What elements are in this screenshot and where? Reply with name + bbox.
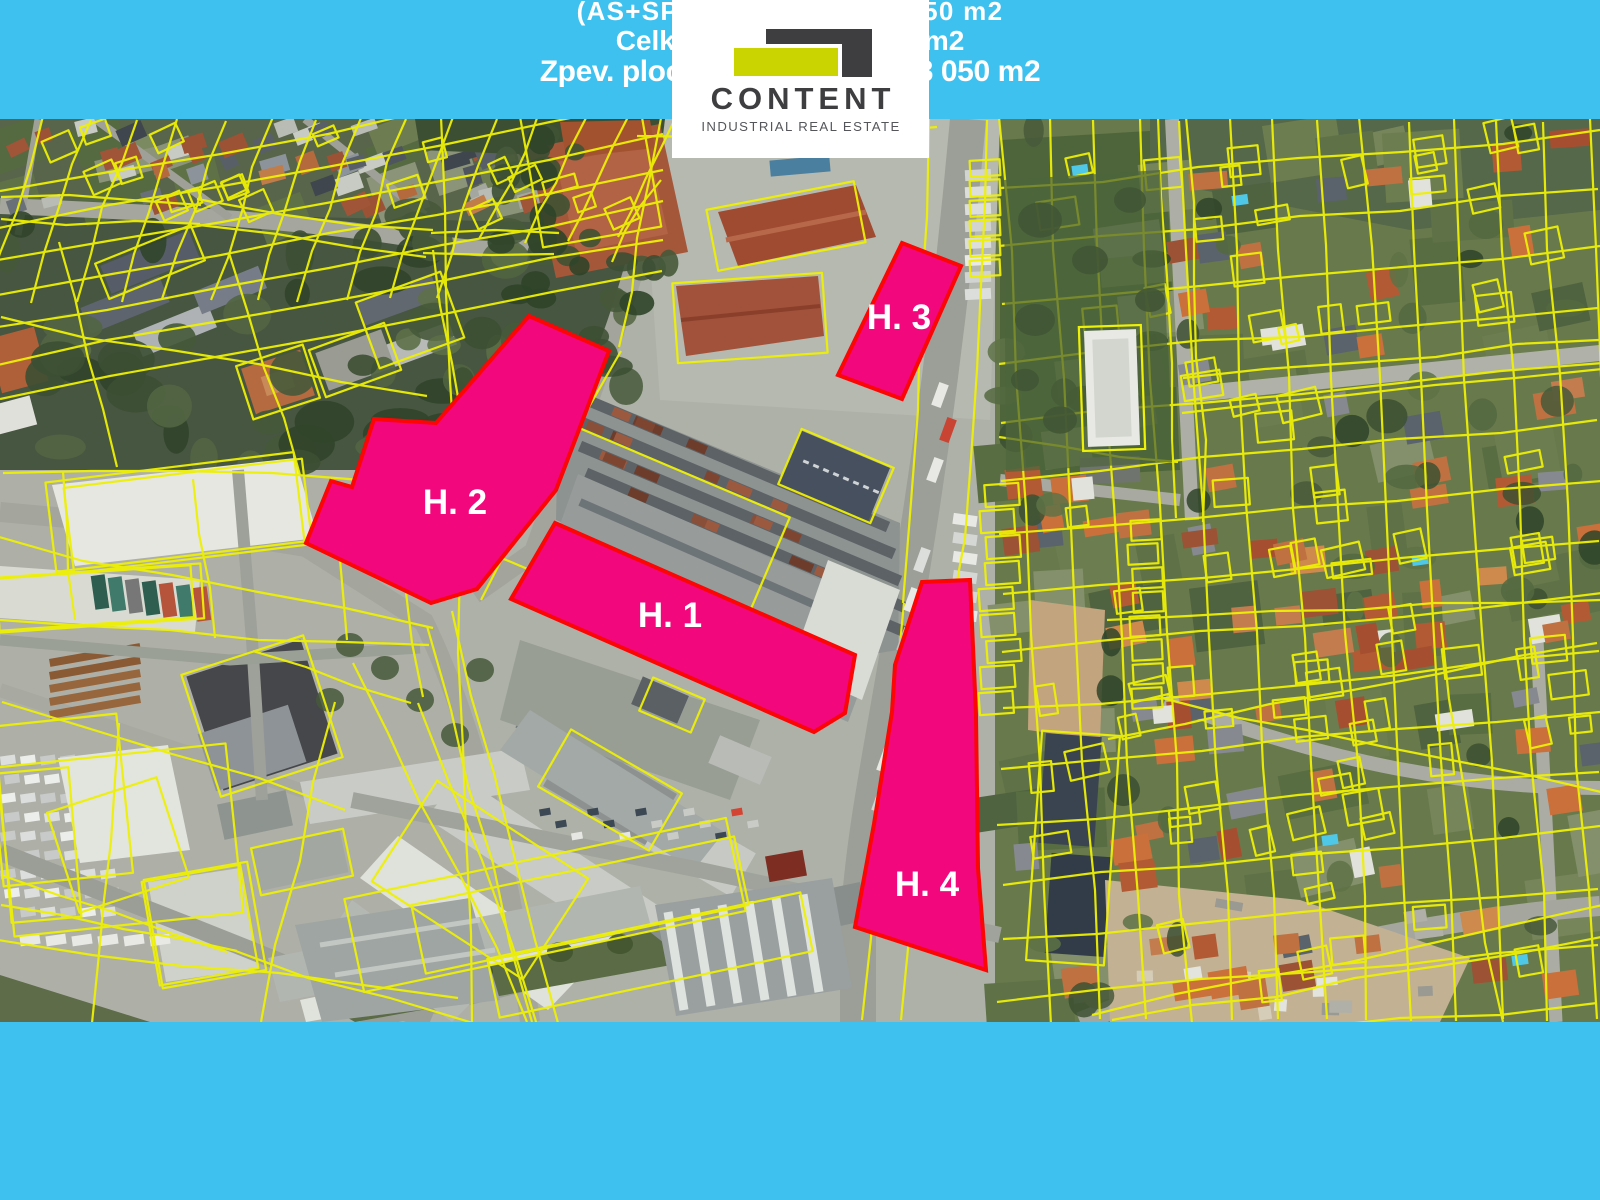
svg-text:H. 3: H. 3 xyxy=(867,298,931,337)
svg-text:H. 2: H. 2 xyxy=(423,483,487,522)
svg-text:H. 1: H. 1 xyxy=(638,596,702,635)
svg-text:H. 4: H. 4 xyxy=(895,865,960,904)
svg-text:INDUSTRIAL REAL ESTATE: INDUSTRIAL REAL ESTATE xyxy=(701,119,900,134)
svg-text:CONTENT: CONTENT xyxy=(711,81,896,116)
